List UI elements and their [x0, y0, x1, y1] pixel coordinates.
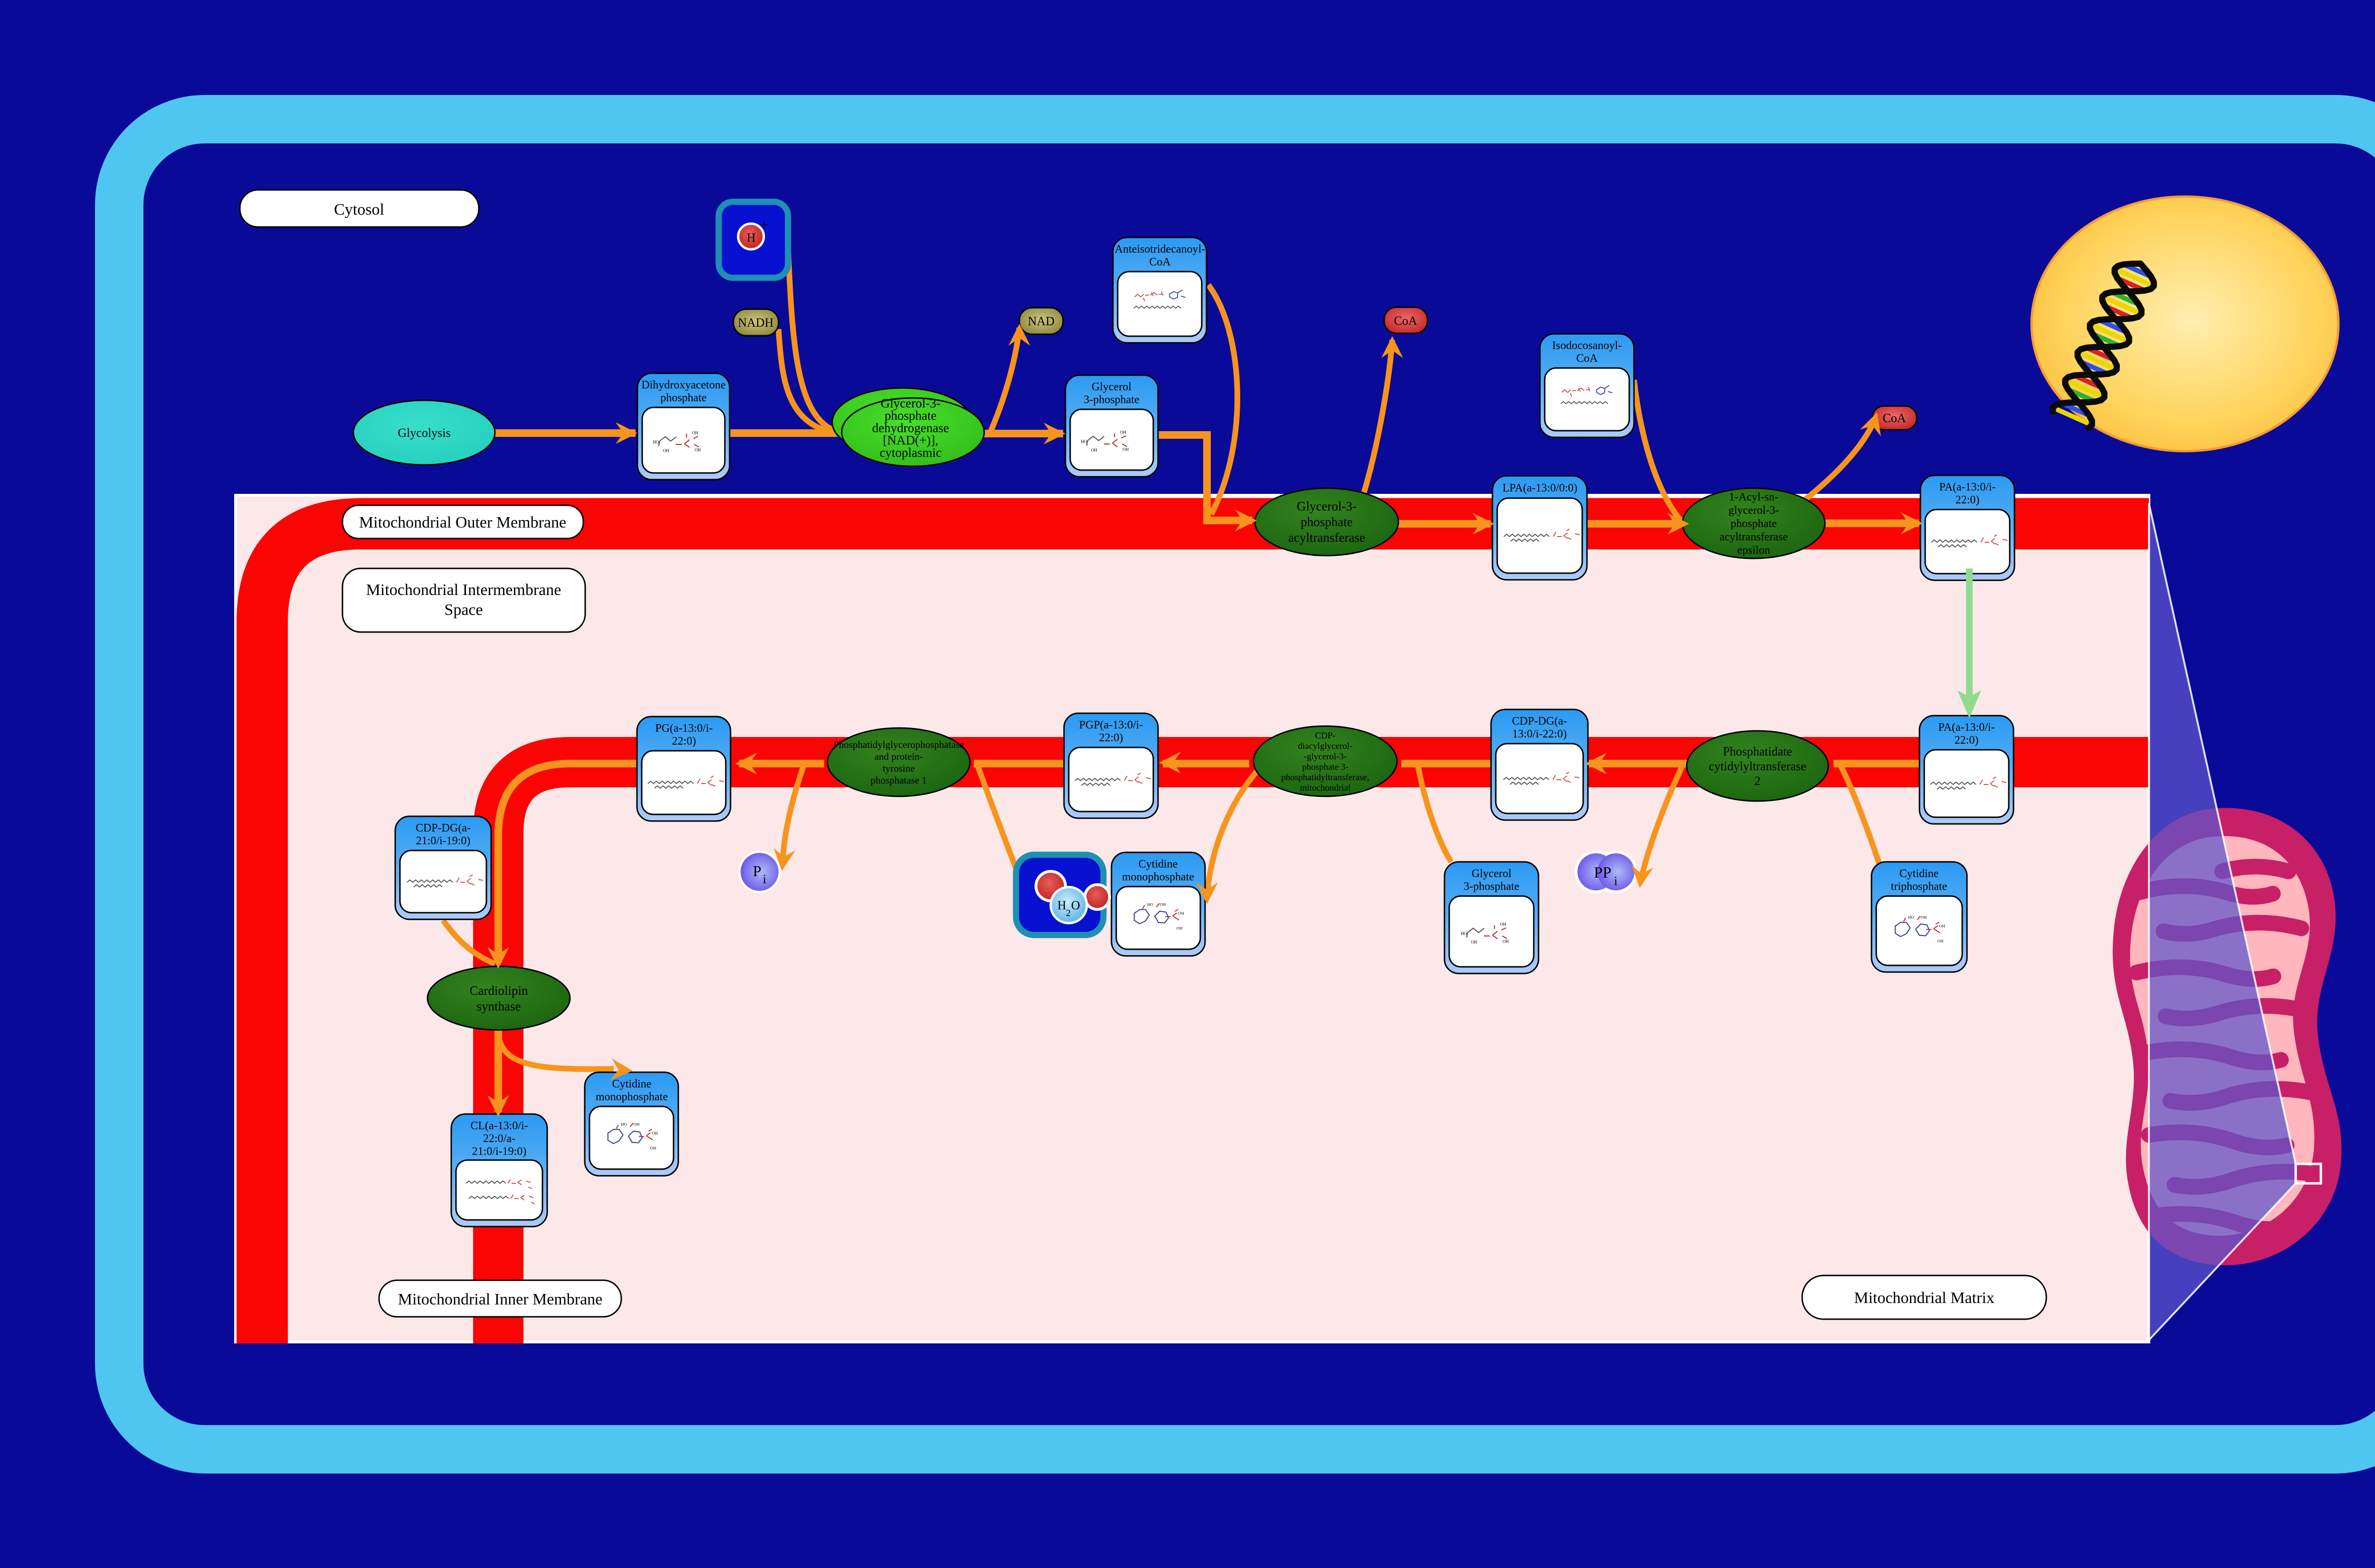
svg-text:PGP(a-13:0/i-: PGP(a-13:0/i- — [1079, 719, 1143, 731]
svg-text:monophosphate: monophosphate — [596, 1091, 668, 1103]
svg-text:Cardiolipin: Cardiolipin — [470, 983, 528, 998]
svg-text:Mitochondrial Matrix: Mitochondrial Matrix — [1854, 1289, 1995, 1307]
svg-text:Mitochondrial Intermembrane: Mitochondrial Intermembrane — [366, 581, 561, 599]
svg-text:Cytidine: Cytidine — [612, 1078, 652, 1090]
svg-text:Phosphatidylglycerophosphatase: Phosphatidylglycerophosphatase — [833, 739, 964, 750]
svg-text:i: i — [763, 872, 766, 886]
svg-text:phosphate 3-: phosphate 3- — [1302, 762, 1349, 772]
svg-text:Glycolysis: Glycolysis — [398, 426, 450, 440]
svg-text:Glycerol: Glycerol — [1472, 868, 1511, 880]
svg-text:Cytidine: Cytidine — [1900, 868, 1939, 880]
svg-text:CoA: CoA — [1576, 352, 1598, 365]
svg-text:H: H — [1057, 898, 1066, 912]
svg-text:-glycerol-3-: -glycerol-3- — [1304, 752, 1347, 762]
svg-text:Mitochondrial Outer Membrane: Mitochondrial Outer Membrane — [359, 514, 566, 531]
svg-text:Glycerol: Glycerol — [1092, 381, 1131, 393]
svg-text:cytidylyltransferase: cytidylyltransferase — [1709, 759, 1806, 773]
svg-text:22:0): 22:0) — [1956, 494, 1980, 506]
svg-text:13:0/i-22:0): 13:0/i-22:0) — [1512, 728, 1567, 740]
svg-text:Cytidine: Cytidine — [1139, 858, 1178, 870]
svg-text:CDP-DG(a-: CDP-DG(a- — [1512, 715, 1567, 727]
svg-text:Dihydroxyacetone: Dihydroxyacetone — [641, 379, 725, 391]
svg-text:LPA(a-13:0/0:0): LPA(a-13:0/0:0) — [1502, 482, 1577, 494]
svg-text:phosphate: phosphate — [1301, 515, 1352, 529]
svg-text:phosphate: phosphate — [1730, 518, 1776, 530]
svg-text:tyrosine: tyrosine — [883, 763, 915, 774]
svg-text:phosphatase 1: phosphatase 1 — [871, 775, 927, 786]
svg-text:CoA: CoA — [1394, 314, 1417, 328]
svg-text:Isodocosanoyl-: Isodocosanoyl- — [1552, 340, 1622, 352]
svg-text:mitochondrial: mitochondrial — [1300, 783, 1351, 793]
svg-text:21:0/i-19:0): 21:0/i-19:0) — [416, 835, 471, 847]
svg-text:Cytosol: Cytosol — [334, 201, 384, 218]
svg-text:CDP-: CDP- — [1315, 731, 1335, 741]
svg-text:22:0): 22:0) — [1099, 732, 1123, 744]
svg-text:PG(a-13:0/i-: PG(a-13:0/i- — [655, 722, 712, 735]
svg-text:phosphatidyltransferase,: phosphatidyltransferase, — [1281, 773, 1369, 783]
svg-text:acyltransferase: acyltransferase — [1288, 530, 1365, 545]
svg-text:Anteisotridecanoyl-: Anteisotridecanoyl- — [1115, 243, 1206, 255]
svg-text:PP: PP — [1594, 864, 1612, 881]
svg-text:synthase: synthase — [477, 999, 521, 1013]
svg-text:NAD: NAD — [1028, 314, 1054, 328]
svg-text:PA(a-13:0/i-: PA(a-13:0/i- — [1939, 481, 1995, 493]
svg-text:1-Acyl-sn-: 1-Acyl-sn- — [1729, 491, 1778, 503]
svg-text:22:0): 22:0) — [672, 735, 696, 747]
svg-text:acyltransferase: acyltransferase — [1719, 531, 1788, 543]
svg-text:Mitochondrial Inner Membrane: Mitochondrial Inner Membrane — [398, 1291, 603, 1308]
svg-text:+: + — [760, 217, 768, 233]
svg-text:epsilon: epsilon — [1737, 544, 1770, 557]
svg-text:22:0/a-: 22:0/a- — [483, 1133, 515, 1145]
svg-text:CoA: CoA — [1882, 411, 1906, 425]
svg-text:CL(a-13:0/i-: CL(a-13:0/i- — [470, 1120, 528, 1132]
svg-text:i: i — [1614, 874, 1617, 888]
svg-text:H: H — [747, 231, 756, 245]
svg-text:NADH: NADH — [738, 316, 773, 330]
svg-text:Phosphatidate: Phosphatidate — [1723, 745, 1792, 758]
svg-text:P: P — [753, 862, 761, 879]
svg-text:O: O — [1071, 898, 1080, 912]
svg-text:3-phosphate: 3-phosphate — [1083, 394, 1139, 406]
svg-text:21:0/i-19:0): 21:0/i-19:0) — [472, 1145, 527, 1158]
svg-text:2: 2 — [1755, 774, 1761, 788]
svg-text:triphosphate: triphosphate — [1891, 880, 1947, 893]
svg-text:diacylglycerol-: diacylglycerol- — [1298, 741, 1352, 751]
svg-text:CDP-DG(a-: CDP-DG(a- — [416, 822, 471, 834]
svg-text:22:0): 22:0) — [1955, 734, 1979, 746]
svg-text:Space: Space — [444, 601, 483, 619]
svg-text:3-phosphate: 3-phosphate — [1463, 880, 1519, 893]
svg-text:glycerol-3-: glycerol-3- — [1729, 504, 1779, 517]
svg-text:2: 2 — [1066, 908, 1071, 918]
svg-text:Glycerol-3-: Glycerol-3- — [1297, 499, 1357, 513]
svg-text:cytoplasmic: cytoplasmic — [880, 445, 941, 460]
svg-text:and protein-: and protein- — [874, 751, 923, 762]
svg-text:phosphate: phosphate — [660, 392, 706, 404]
svg-text:PA(a-13:0/i-: PA(a-13:0/i- — [1938, 721, 1995, 734]
svg-text:monophosphate: monophosphate — [1122, 871, 1194, 883]
svg-text:CoA: CoA — [1149, 256, 1171, 268]
